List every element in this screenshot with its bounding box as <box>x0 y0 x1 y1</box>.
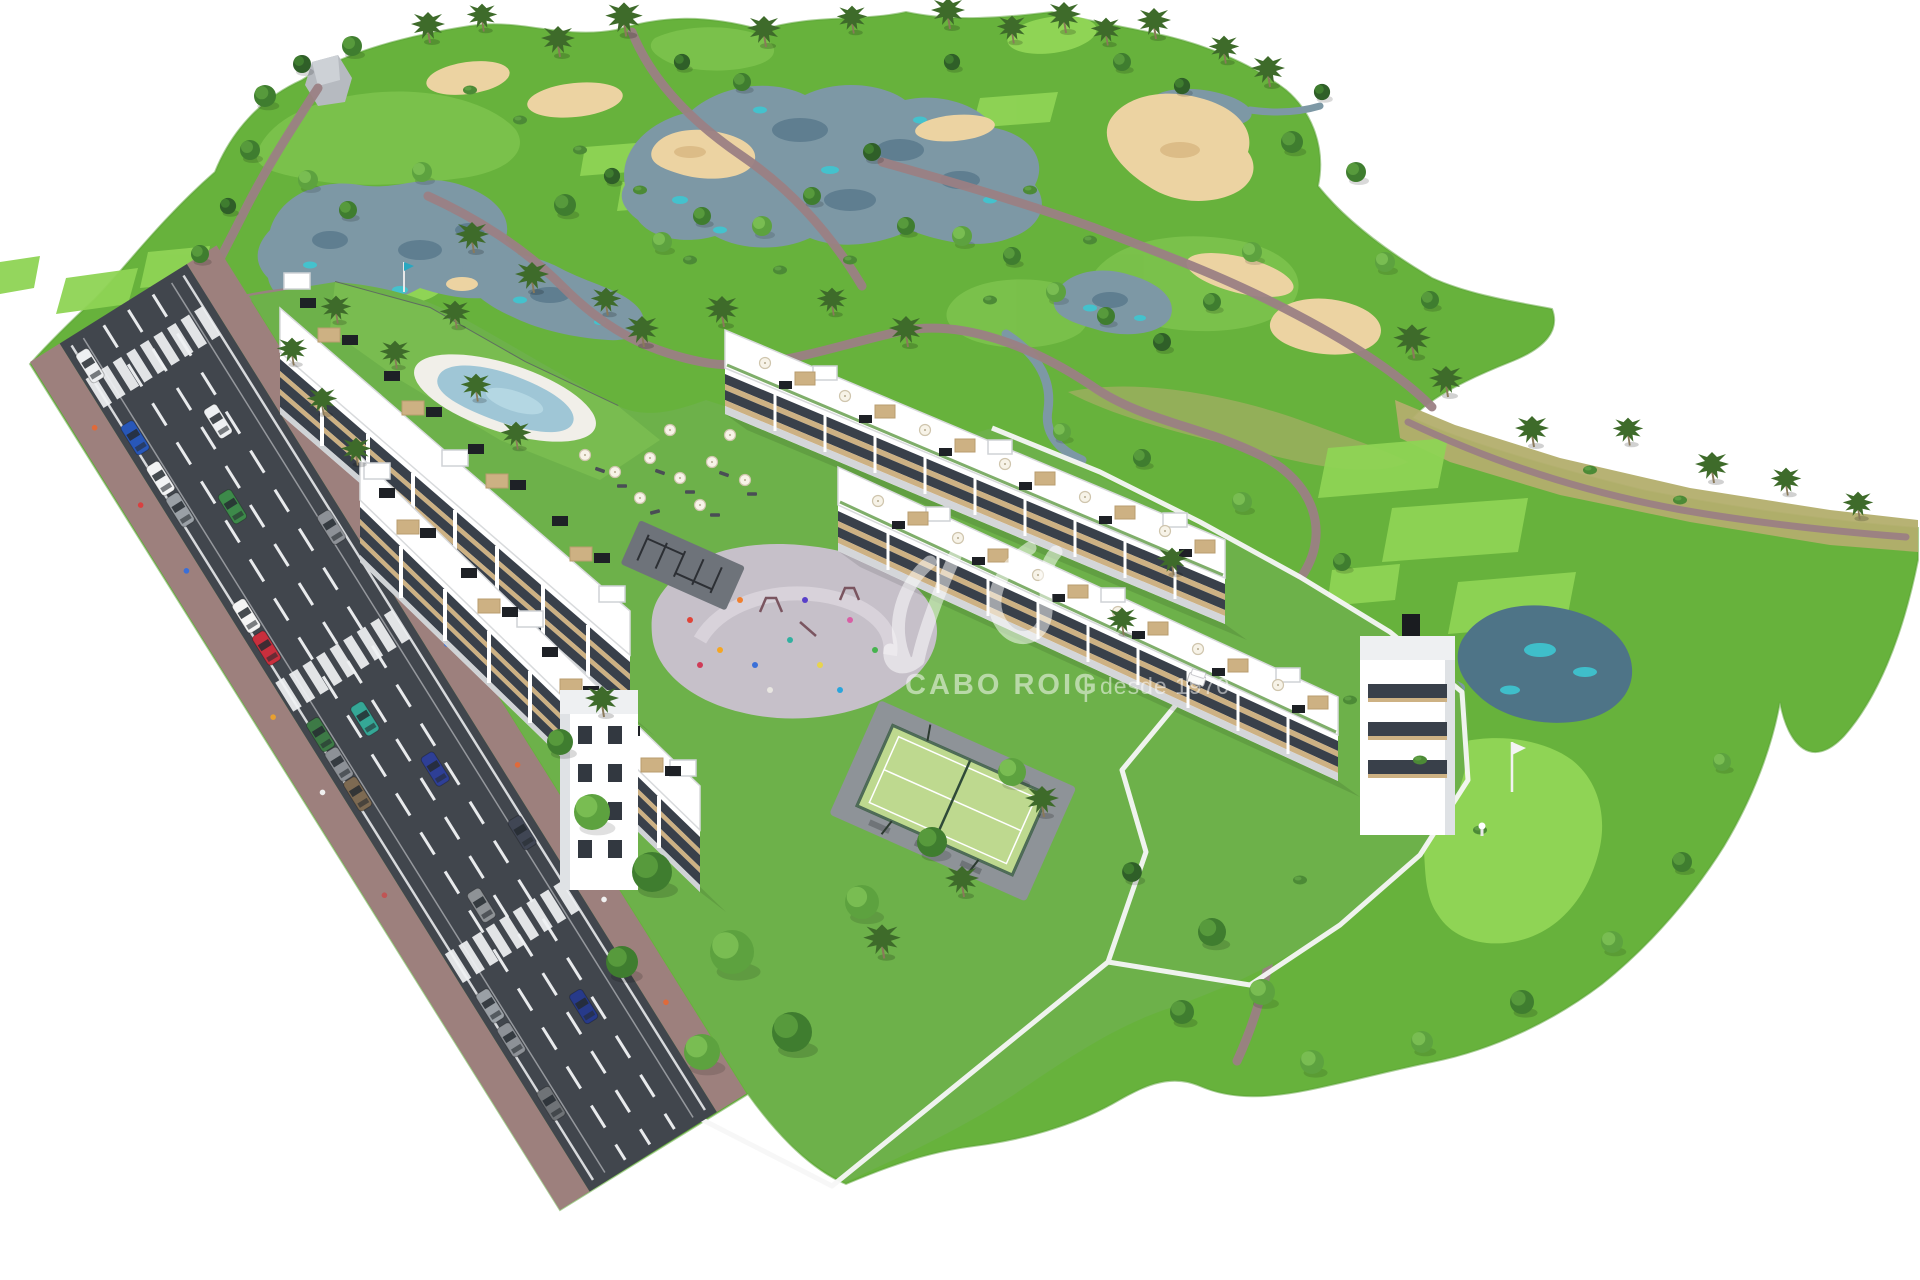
palm-icon <box>1613 418 1644 448</box>
tree-icon <box>1314 84 1333 103</box>
bush-icon <box>573 146 587 155</box>
bush-icon <box>843 256 857 265</box>
umbrella-icon <box>1160 526 1171 537</box>
umbrella-icon <box>1273 680 1284 691</box>
render-canvas: CABO ROIG | desde 1970 <box>0 0 1920 1280</box>
tree-icon <box>342 36 365 59</box>
palm-icon <box>1695 452 1729 485</box>
render-scene: CABO ROIG | desde 1970 <box>0 0 1920 1280</box>
bush-icon <box>513 116 527 125</box>
golfer <box>1479 823 1486 830</box>
bush-icon <box>1343 696 1357 705</box>
lounger-icon <box>747 492 757 496</box>
umbrella-icon <box>740 475 751 486</box>
bush-icon <box>1083 236 1097 245</box>
lounger-icon <box>710 513 720 517</box>
umbrella-icon <box>953 533 964 544</box>
bush-icon <box>463 86 477 95</box>
watermark-tagline: desde 1970 <box>1100 673 1230 699</box>
bush-icon <box>773 266 787 275</box>
umbrella-icon <box>675 473 686 484</box>
umbrella-icon <box>920 425 931 436</box>
umbrella-icon <box>580 450 591 461</box>
umbrella-icon <box>840 391 851 402</box>
umbrella-icon <box>695 500 706 511</box>
tower-chimney <box>1402 614 1420 638</box>
umbrella-icon <box>610 467 621 478</box>
tee-box <box>0 256 40 294</box>
umbrella-icon <box>1080 492 1091 503</box>
tee-box <box>1382 498 1528 562</box>
bush-icon <box>683 256 697 265</box>
bunker <box>446 277 478 291</box>
corner-tower <box>560 690 638 890</box>
end-tower <box>1360 614 1455 835</box>
bush-icon <box>1673 496 1687 505</box>
lounger-icon <box>685 490 695 494</box>
bush-icon <box>1293 876 1307 885</box>
umbrella-icon <box>873 496 884 507</box>
palm-icon <box>1515 416 1549 449</box>
umbrella-icon <box>725 430 736 441</box>
palm-icon <box>1771 468 1802 498</box>
tree-icon <box>254 85 279 110</box>
lounger-icon <box>617 484 627 488</box>
bush-icon <box>1583 466 1597 475</box>
bush-icon <box>633 186 647 195</box>
watermark-brand-text: CABO ROIG <box>905 669 1100 701</box>
bush-icon <box>1413 756 1427 765</box>
umbrella-icon <box>1193 644 1204 655</box>
umbrella-icon <box>635 493 646 504</box>
tree-icon <box>293 55 314 76</box>
umbrella-icon <box>707 457 718 468</box>
umbrella-icon <box>1000 459 1011 470</box>
bush-icon <box>983 296 997 305</box>
umbrella-icon <box>760 358 771 369</box>
umbrella-icon <box>645 453 656 464</box>
watermark-separator: | <box>1082 670 1090 703</box>
umbrella-icon <box>665 425 676 436</box>
bush-icon <box>1023 186 1037 195</box>
tree-icon <box>1346 162 1369 185</box>
tower-glass-bands <box>1368 684 1447 778</box>
